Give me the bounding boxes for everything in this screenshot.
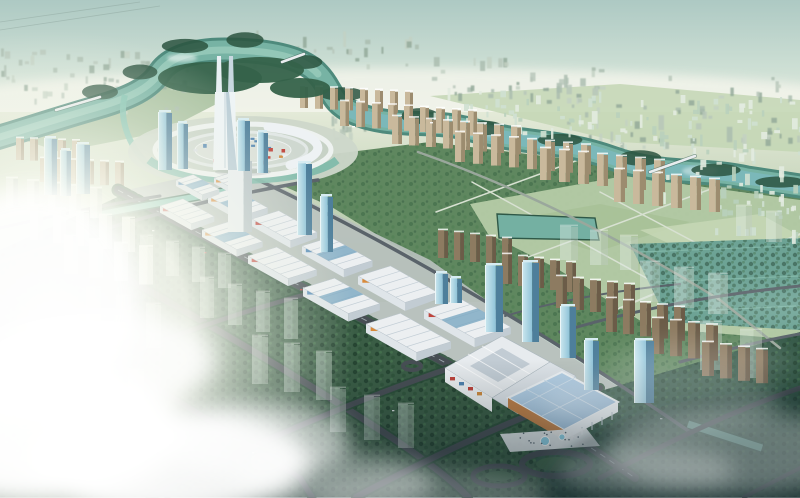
far-residential-building [792, 230, 796, 244]
tan-tower [449, 122, 453, 149]
far-residential-building [791, 207, 794, 211]
far-residential-building [762, 201, 764, 207]
distant-building [580, 78, 586, 86]
far-residential-building [570, 126, 573, 131]
brown-tower [607, 281, 618, 283]
brown-tower [460, 233, 464, 260]
distant-building [303, 37, 307, 48]
brown-tower [556, 275, 567, 277]
far-residential-building [726, 104, 730, 114]
distant-building [635, 121, 640, 129]
glass-tower-side [443, 274, 448, 304]
distant-building [643, 106, 646, 110]
tan-tower [420, 107, 426, 132]
far-residential-building [660, 132, 665, 147]
distant-building [756, 92, 759, 97]
far-residential-building [739, 103, 745, 108]
distant-building [488, 94, 493, 98]
distant-building [567, 98, 572, 104]
far-residential-building [560, 116, 565, 119]
brown-tower [566, 261, 576, 263]
ghost-tower [686, 269, 694, 308]
tan-tower [491, 136, 497, 166]
far-residential-building [759, 193, 763, 198]
tan-tower [330, 86, 338, 88]
brown-tower [647, 303, 651, 336]
tan-tower [690, 176, 701, 178]
tan-tower [614, 168, 625, 170]
tan-tower [345, 87, 353, 89]
tan-tower [690, 177, 697, 210]
ghost-tower [571, 227, 578, 260]
distant-building [516, 86, 520, 90]
far-residential-building [743, 149, 749, 152]
brown-tower [652, 317, 664, 319]
ghost-tower [640, 261, 660, 263]
brown-tower [606, 297, 617, 299]
far-residential-building [732, 167, 736, 181]
ghost-tower [560, 225, 578, 227]
far-residential-building [739, 153, 744, 161]
far-residential-building [758, 208, 761, 216]
distant-building [577, 94, 582, 98]
brown-tower [670, 319, 682, 321]
brown-tower [470, 233, 480, 235]
far-residential-building [733, 200, 738, 204]
tan-tower [360, 88, 368, 90]
brown-tower [613, 299, 617, 332]
tan-tower [372, 103, 378, 128]
distant-building [432, 77, 437, 81]
brown-tower [492, 237, 496, 264]
far-residential-building [588, 122, 592, 129]
tan-tower [473, 134, 479, 164]
tan-tower [392, 116, 398, 144]
far-residential-building [509, 110, 515, 114]
tan-tower [545, 140, 555, 142]
distant-building [599, 69, 605, 72]
tan-tower [452, 108, 461, 110]
far-residential-building [527, 99, 529, 105]
far-residential-building [689, 121, 692, 129]
ghost-tower [590, 231, 601, 265]
tan-tower [578, 152, 585, 184]
tan-tower [409, 116, 419, 118]
far-residential-building [579, 120, 584, 124]
far-residential-building [486, 112, 488, 118]
far-residential-building [693, 148, 696, 154]
tan-tower [404, 104, 413, 106]
distant-building [487, 57, 492, 69]
tan-tower [460, 121, 470, 123]
far-residential-building [518, 118, 522, 122]
brown-tower [486, 236, 492, 264]
ghost-tower [736, 205, 752, 207]
brown-tower [640, 301, 651, 303]
distant-building [509, 90, 512, 99]
glass-tower-crown [523, 260, 538, 262]
ghost-tower [560, 226, 571, 260]
tan-tower [461, 133, 465, 162]
distant-building [727, 127, 733, 142]
distant-building [335, 118, 338, 123]
far-residential-building [448, 88, 451, 101]
glass-tower-face [560, 306, 570, 358]
brown-tower [550, 260, 556, 290]
far-residential-building [739, 183, 743, 187]
brown-tower [664, 306, 668, 339]
tan-tower [420, 106, 429, 108]
distant-building [625, 120, 627, 126]
far-residential-building [479, 91, 482, 94]
tan-tower [509, 136, 519, 138]
tan-tower [426, 118, 436, 120]
tan-tower [597, 154, 604, 186]
far-residential-building [761, 132, 767, 139]
ghost-tower [700, 321, 722, 323]
far-residential-building [693, 138, 695, 141]
tan-tower [511, 125, 521, 127]
far-residential-building [750, 111, 753, 115]
distant-building [669, 76, 673, 81]
riverbank-trees [162, 39, 208, 53]
tan-tower [659, 174, 663, 206]
tan-tower [473, 132, 483, 134]
brown-tower [540, 259, 544, 288]
distant-building [631, 132, 634, 137]
glass-tower-crown [436, 271, 447, 273]
tan-tower [509, 137, 515, 167]
tan-tower [563, 141, 573, 143]
distant-building [406, 64, 409, 67]
brown-tower [573, 277, 584, 279]
far-residential-building [692, 117, 698, 121]
brown-tower [563, 277, 567, 308]
glass-tower-face [450, 278, 457, 303]
ghost-tower [708, 273, 728, 275]
tan-tower [527, 139, 533, 169]
tan-tower [390, 89, 398, 91]
tan-tower [616, 155, 627, 157]
tan-tower [551, 142, 555, 171]
tan-tower [697, 178, 701, 210]
boat [430, 122, 433, 123]
glass-tower-crown [635, 338, 653, 340]
distant-building [659, 115, 665, 130]
cloud-puff [605, 340, 795, 380]
tan-tower [356, 102, 362, 127]
tan-tower [340, 100, 349, 102]
tan-tower [578, 151, 589, 153]
brown-tower [534, 257, 544, 259]
far-residential-building [706, 150, 709, 155]
distant-building [771, 118, 777, 123]
distant-building [696, 123, 701, 129]
brown-tower [623, 300, 630, 334]
far-residential-building [504, 113, 506, 117]
brown-tower [556, 276, 563, 308]
far-residential-building [551, 128, 553, 139]
distant-building [327, 47, 333, 50]
brown-tower [674, 305, 685, 307]
far-residential-building [793, 185, 798, 194]
distant-building [367, 64, 370, 69]
tan-tower [671, 174, 682, 176]
cloud-puff [555, 445, 735, 495]
tan-tower [640, 172, 644, 204]
boat [352, 126, 355, 127]
ghost-tower [766, 211, 782, 213]
brown-tower [590, 280, 597, 312]
glass-tower-face [522, 262, 532, 342]
masterplan-rendering [0, 0, 800, 498]
far-residential-building [774, 130, 780, 133]
tan-tower [633, 170, 644, 172]
tan-tower [372, 102, 381, 104]
tan-tower [491, 134, 501, 136]
far-residential-building [714, 99, 719, 105]
distant-building [678, 110, 681, 114]
distant-building [346, 127, 352, 132]
far-residential-building [700, 135, 703, 147]
tan-tower [356, 101, 365, 103]
tan-tower [365, 90, 368, 111]
tan-tower [566, 151, 570, 182]
tan-tower [443, 119, 453, 121]
tan-tower [559, 150, 566, 182]
distant-building [530, 73, 535, 82]
tan-tower [527, 138, 537, 140]
tan-tower [497, 137, 501, 166]
brown-tower [590, 279, 601, 281]
far-residential-building [734, 140, 737, 150]
distant-building [771, 77, 774, 80]
far-residential-building [779, 166, 784, 177]
tan-tower [432, 120, 436, 147]
far-residential-building [751, 148, 754, 161]
far-residential-building [673, 111, 676, 116]
far-residential-building [721, 187, 726, 198]
tan-tower [671, 175, 678, 208]
distant-building [530, 93, 533, 102]
distant-building [708, 116, 712, 119]
far-residential-building [681, 95, 686, 103]
tan-tower [581, 143, 591, 145]
glass-tower-crown [486, 263, 502, 265]
glass-tower-side [496, 266, 503, 332]
tan-tower [597, 153, 608, 155]
tan-tower [483, 125, 487, 152]
glass-tower-face [435, 273, 443, 304]
glass-tower-side [532, 263, 539, 342]
far-residential-building [653, 136, 657, 141]
tan-tower [678, 176, 682, 208]
tan-tower [340, 101, 346, 126]
tan-tower [415, 119, 419, 146]
distant-building [730, 88, 733, 97]
tan-tower [716, 180, 720, 212]
tan-tower [466, 123, 470, 150]
brown-tower [454, 232, 460, 260]
tan-tower [398, 117, 402, 144]
tan-tower [477, 122, 487, 124]
glass-tower-crown [561, 304, 575, 306]
distant-building [332, 116, 335, 126]
distant-building [381, 47, 383, 54]
tan-tower [392, 115, 402, 117]
far-residential-building [762, 110, 765, 116]
ghost-tower [640, 262, 652, 302]
tan-tower [635, 157, 646, 159]
far-residential-building [541, 131, 547, 137]
glass-tower-face [485, 265, 496, 332]
distant-building [578, 99, 582, 103]
far-residential-building [717, 162, 722, 165]
far-residential-building [790, 102, 796, 105]
distant-building [767, 134, 770, 139]
far-residential-building [557, 106, 560, 111]
tan-tower [621, 170, 625, 202]
distant-building [498, 58, 502, 67]
ghost-tower [746, 207, 752, 236]
glass-tower-crown [451, 276, 461, 278]
tan-tower [709, 178, 720, 180]
tan-tower [436, 107, 445, 109]
far-residential-building [666, 175, 670, 180]
far-residential-building [513, 114, 516, 119]
distant-building [434, 57, 440, 66]
distant-building [471, 85, 475, 91]
brown-tower [550, 259, 560, 261]
ghost-tower [620, 236, 631, 270]
far-residential-building [730, 107, 733, 111]
far-residential-building [620, 128, 625, 132]
distant-building [788, 138, 793, 144]
far-residential-building [501, 105, 507, 108]
far-residential-building [727, 185, 732, 188]
far-residential-building [592, 111, 598, 124]
far-residential-building [734, 150, 736, 158]
tan-tower [443, 121, 449, 149]
distant-building [524, 91, 527, 95]
far-residential-building [495, 99, 499, 108]
brown-tower [606, 298, 613, 332]
ghost-tower [590, 230, 608, 232]
distant-building [585, 112, 588, 117]
tan-tower [654, 159, 665, 161]
distant-building [458, 93, 462, 101]
brown-tower [438, 230, 444, 258]
far-residential-building [630, 121, 632, 126]
glass-tower-side [570, 307, 576, 358]
far-residential-building [616, 135, 621, 143]
tan-tower [388, 103, 397, 105]
far-residential-building [500, 91, 506, 98]
far-residential-building [688, 135, 692, 138]
aerial-scene [0, 0, 800, 498]
tan-tower [350, 89, 353, 110]
tan-tower [455, 131, 465, 133]
far-residential-building [760, 185, 763, 192]
ghost-tower [620, 235, 638, 237]
glass-tower-crown [585, 338, 598, 340]
distant-building [564, 75, 568, 88]
brown-tower [657, 303, 668, 305]
far-residential-building [780, 97, 782, 103]
pond [497, 214, 599, 240]
brown-tower [502, 237, 512, 239]
distant-building [616, 104, 622, 108]
far-residential-building [696, 172, 700, 175]
far-residential-building [748, 118, 751, 129]
distant-building [719, 96, 725, 99]
tan-tower [559, 149, 570, 151]
distant-building [415, 45, 419, 50]
distant-building [600, 86, 606, 89]
tan-tower [378, 104, 381, 128]
far-residential-building [754, 191, 758, 198]
distant-building [455, 92, 457, 95]
tan-tower [436, 108, 442, 133]
brown-tower [476, 235, 480, 262]
tan-tower [468, 109, 477, 111]
ghost-tower [601, 232, 608, 265]
brown-tower [580, 279, 584, 310]
far-residential-building [792, 118, 798, 129]
distant-building [332, 49, 334, 54]
far-residential-building [569, 118, 574, 122]
tan-tower [404, 106, 410, 131]
far-residential-building [752, 122, 758, 126]
tan-tower [547, 149, 551, 180]
distant-building [314, 49, 316, 52]
far-residential-building [536, 95, 541, 104]
distant-building [689, 100, 695, 105]
brown-tower [444, 231, 448, 258]
distant-building [364, 48, 368, 57]
far-residential-building [749, 100, 753, 109]
far-residential-building [745, 174, 750, 186]
distant-building [572, 105, 575, 108]
far-residential-building [523, 131, 528, 135]
tan-tower [540, 147, 551, 149]
far-residential-building [599, 92, 601, 103]
far-residential-building [646, 117, 648, 120]
distant-building [346, 49, 348, 54]
distant-building [592, 88, 598, 95]
tan-tower [409, 118, 415, 146]
distant-building [480, 61, 485, 71]
far-residential-building [616, 112, 620, 118]
far-residential-building [486, 105, 488, 109]
tan-tower [346, 102, 349, 126]
brown-tower [624, 283, 635, 285]
brown-tower [597, 281, 601, 312]
ghost-tower [674, 268, 686, 308]
tan-tower [633, 171, 640, 204]
distant-building [547, 100, 552, 104]
tan-tower [330, 88, 335, 110]
distant-building [592, 68, 596, 71]
distant-building [407, 41, 412, 47]
far-residential-building [715, 228, 718, 235]
distant-building [611, 132, 614, 143]
far-residential-building [652, 126, 656, 135]
distant-building [714, 106, 719, 110]
distant-building [474, 58, 476, 66]
distant-building [543, 88, 549, 91]
far-residential-building [787, 208, 790, 214]
